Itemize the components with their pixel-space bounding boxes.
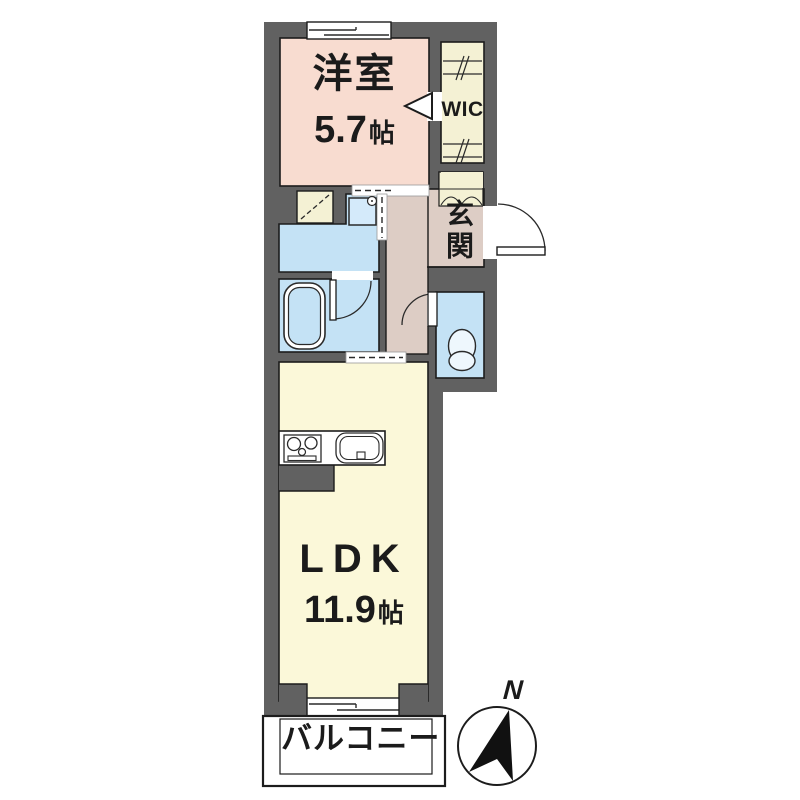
ldk-sliding-door (346, 352, 406, 363)
balcony-label: バルコニー (281, 722, 432, 756)
ldk-area: 11.9帖 (280, 590, 428, 632)
sink-icon (336, 433, 383, 463)
bathroom-door-leaf (330, 280, 336, 320)
stove-icon (284, 435, 321, 462)
window-stub-right (399, 684, 428, 716)
ldk-area-value: 11.9 (304, 590, 376, 632)
bedroom-window (307, 22, 391, 39)
ldk-label: LDK (280, 537, 428, 581)
washbasin-icon (349, 197, 377, 226)
washroom-folding-door (377, 194, 387, 240)
compass (458, 707, 536, 785)
bedroom-sliding-door (352, 185, 429, 196)
ldk-area-unit: 帖 (378, 599, 404, 628)
bedroom-area: 5.7帖 (280, 110, 429, 152)
entrance-door-leaf (497, 247, 545, 255)
compass-north-label: N (495, 676, 531, 706)
ldk-window (306, 698, 401, 716)
shoe-storage-top (441, 172, 483, 188)
wic-label: WIC (440, 98, 485, 121)
hallway-floor (386, 186, 428, 354)
ldk-floor (279, 362, 428, 701)
bathtub-icon (284, 283, 325, 349)
door-swing-icon (498, 204, 545, 251)
window-stub-left (279, 684, 307, 716)
genkan-label: 玄関 (443, 195, 473, 267)
bedroom-area-unit: 帖 (369, 119, 395, 148)
toilet-door-leaf (428, 292, 437, 326)
floor-plan: 洋室 5.7帖 WIC 玄関 LDK 11.9帖 バルコニー N (0, 0, 800, 800)
kitchen-counter (279, 431, 385, 465)
toilet-icon (449, 330, 476, 371)
bedroom-area-value: 5.7 (314, 110, 367, 152)
kitchen-wall-bump (279, 464, 334, 491)
entrance-door (483, 204, 545, 259)
bedroom-label: 洋室 (280, 52, 429, 96)
